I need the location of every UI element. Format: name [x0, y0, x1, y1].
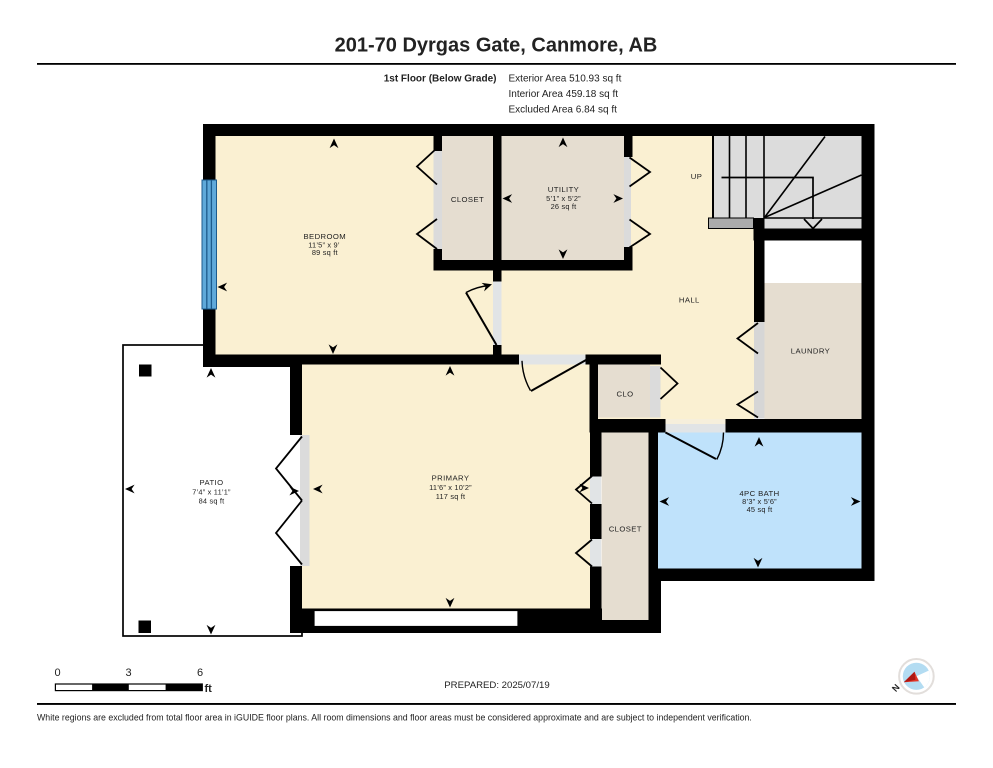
svg-text:White regions are excluded fro: White regions are excluded from total fl…: [37, 713, 752, 723]
svg-text:45 sq ft: 45 sq ft: [747, 505, 773, 514]
svg-text:LAUNDRY: LAUNDRY: [791, 347, 830, 356]
svg-text:201-70 Dyrgas Gate, Canmore, A: 201-70 Dyrgas Gate, Canmore, AB: [335, 35, 658, 57]
svg-text:84 sq ft: 84 sq ft: [199, 497, 225, 506]
svg-text:3: 3: [125, 667, 131, 679]
svg-text:UP: UP: [691, 172, 702, 181]
svg-text:Excluded Area 6.84 sq ft: Excluded Area 6.84 sq ft: [509, 105, 618, 116]
svg-text:6: 6: [197, 667, 203, 679]
svg-text:Exterior Area 510.93 sq ft: Exterior Area 510.93 sq ft: [509, 74, 622, 85]
svg-text:89 sq ft: 89 sq ft: [312, 248, 338, 257]
svg-text:ft: ft: [205, 683, 213, 695]
svg-text:1st Floor (Below Grade): 1st Floor (Below Grade): [384, 74, 497, 85]
svg-text:117 sq ft: 117 sq ft: [436, 492, 466, 501]
svg-text:CLO: CLO: [616, 390, 633, 399]
svg-text:CLOSET: CLOSET: [609, 525, 642, 534]
svg-text:UTILITY: UTILITY: [548, 185, 579, 194]
svg-text:HALL: HALL: [679, 295, 700, 304]
svg-text:7’4” x 11’1”: 7’4” x 11’1”: [192, 488, 231, 497]
svg-text:CLOSET: CLOSET: [451, 195, 484, 204]
svg-text:PREPARED: 2025/07/19: PREPARED: 2025/07/19: [444, 680, 549, 691]
svg-text:PATIO: PATIO: [200, 478, 224, 487]
svg-text:PRIMARY: PRIMARY: [432, 474, 470, 483]
svg-text:11’6” x 10’2”: 11’6” x 10’2”: [429, 483, 472, 492]
svg-text:0: 0: [54, 667, 60, 679]
svg-text:Interior Area 459.18 sq ft: Interior Area 459.18 sq ft: [509, 89, 619, 100]
svg-text:26 sq ft: 26 sq ft: [551, 202, 577, 211]
